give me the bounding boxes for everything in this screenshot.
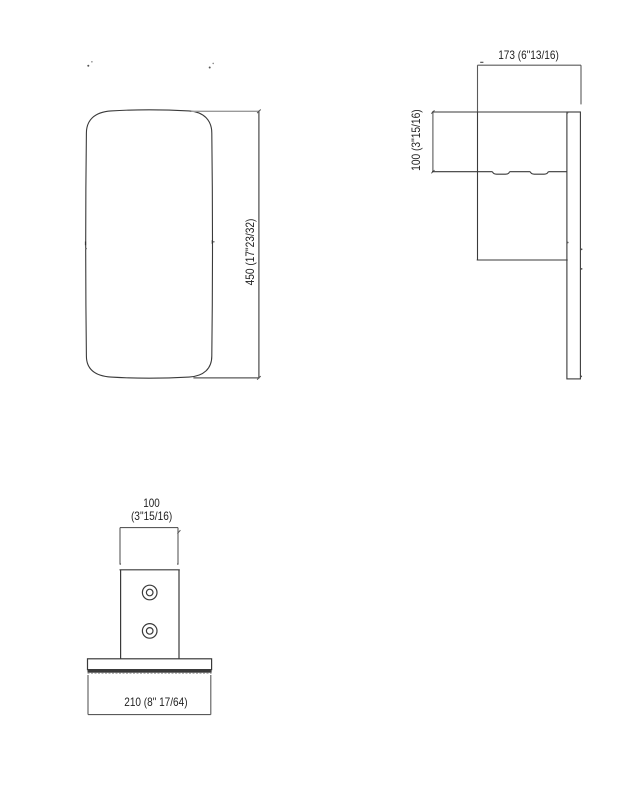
svg-text:173 (6"13/16): 173 (6"13/16) — [498, 48, 559, 62]
svg-text:210 (8" 17/64): 210 (8" 17/64) — [124, 695, 187, 709]
svg-text:450 (17"23/32): 450 (17"23/32) — [243, 219, 257, 286]
svg-text:100 (3"15/16): 100 (3"15/16) — [409, 109, 423, 171]
svg-text:(3"15/16): (3"15/16) — [131, 509, 172, 523]
